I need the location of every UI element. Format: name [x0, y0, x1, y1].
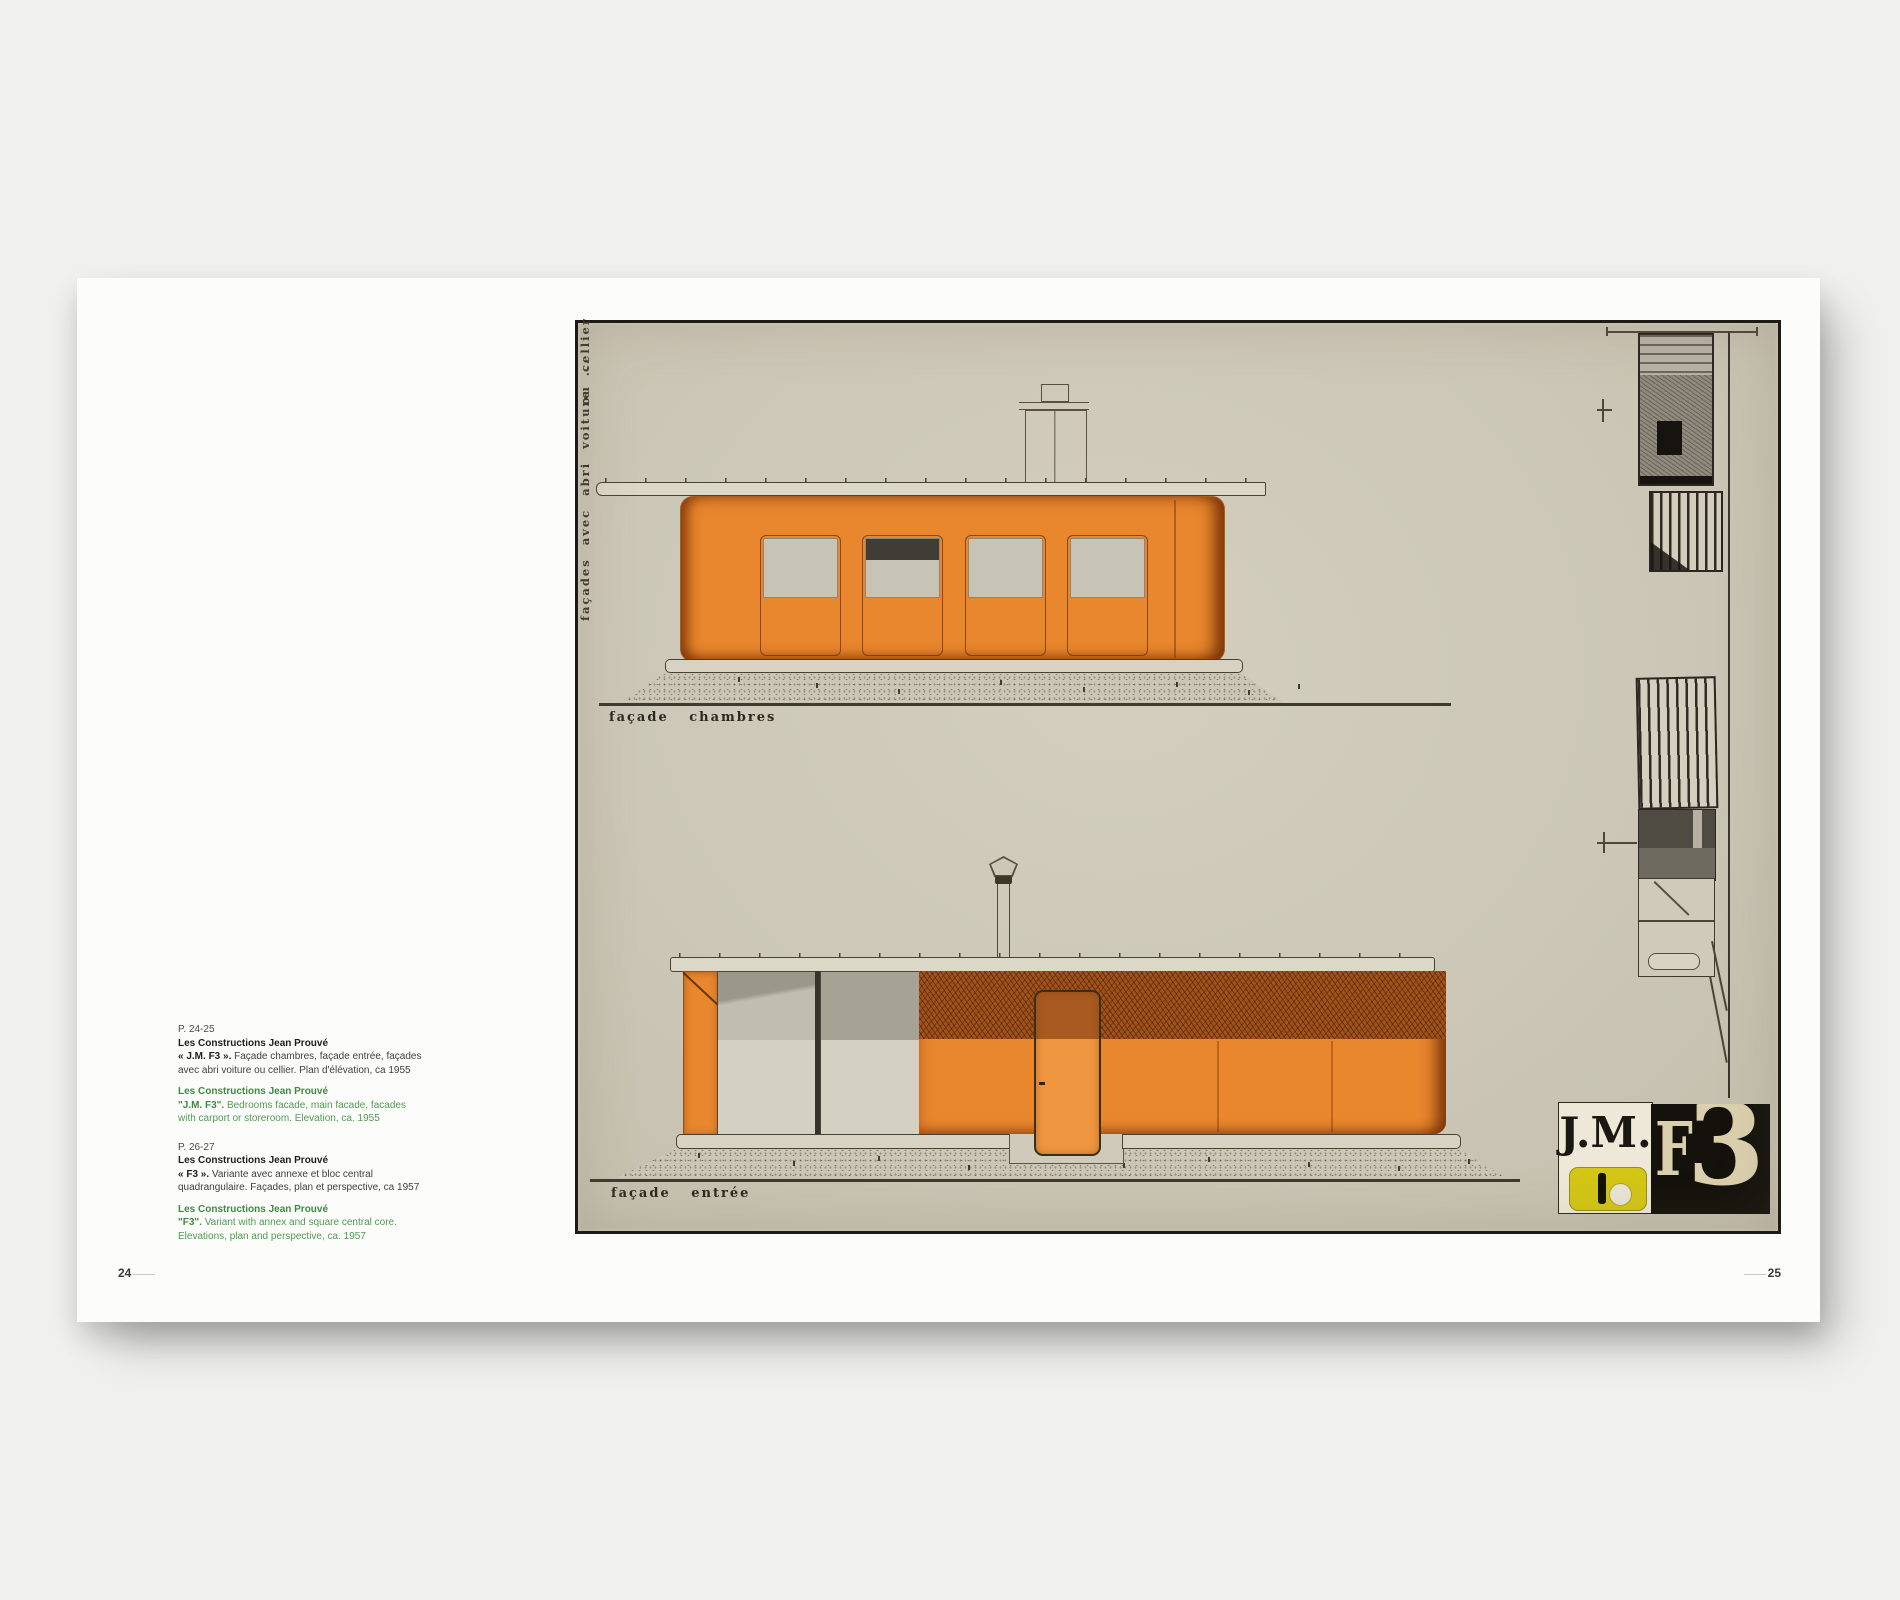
glass-lower — [718, 1040, 816, 1135]
caption-fr: Les Constructions Jean Prouvé « J.M. F3 … — [178, 1037, 468, 1078]
window — [763, 538, 838, 598]
bottom-elevation-facade — [919, 971, 1446, 1134]
panel-seam — [1217, 1041, 1219, 1132]
top-elevation-facade — [680, 496, 1225, 662]
page-number-right: 25 — [1725, 1266, 1781, 1280]
logo-f3-panel: F 3 — [1651, 1104, 1770, 1214]
logo-jm-text: J.M. — [1559, 1112, 1652, 1154]
logo-bar-glyph — [1598, 1173, 1606, 1204]
strip-panel-hatched — [1638, 333, 1714, 486]
leader-line — [1710, 976, 1728, 1063]
bottom-chimney-finial — [989, 856, 1018, 877]
top-chimney — [1025, 410, 1087, 484]
bottom-plinth-left — [676, 1134, 1011, 1149]
bottom-chimney-collar — [995, 876, 1012, 884]
window — [1070, 538, 1145, 598]
page-number-rule — [1744, 1274, 1766, 1275]
caption-en-line1: "F3". Variant with annex and square cent… — [178, 1216, 468, 1230]
logo-yellow-box — [1569, 1167, 1647, 1211]
top-roof-slab — [596, 482, 1266, 496]
page-number-left: 24 — [118, 1266, 157, 1280]
caption-column: P. 24-25 Les Constructions Jean Prouvé «… — [178, 1023, 468, 1243]
caption-fr-line1: « J.M. F3 ». Façade chambres, façade ent… — [178, 1050, 468, 1064]
caption-block-1: P. 24-25 Les Constructions Jean Prouvé «… — [178, 1023, 468, 1126]
entrance-door — [1034, 990, 1101, 1156]
grass-tufts — [738, 677, 740, 682]
glass-bay — [820, 971, 921, 1136]
panel-seam — [1174, 500, 1176, 658]
window-dark-pane — [866, 539, 939, 560]
burnt-upper-band — [919, 971, 1446, 1039]
caption-en: Les Constructions Jean Prouvé "F3". Vari… — [178, 1203, 468, 1244]
drawing-plate: façade chambres — [575, 320, 1781, 1234]
caption-fr: Les Constructions Jean Prouvé « F3 ». Va… — [178, 1154, 468, 1195]
facade-panel — [760, 535, 841, 656]
top-chimney-cap — [1041, 384, 1069, 402]
strip-panel-light — [1638, 878, 1715, 977]
glass-upper — [718, 972, 816, 1041]
logo-three-glyph: 3 — [1687, 1104, 1765, 1202]
dimension-tick — [1597, 399, 1613, 423]
strip-panel-dark — [1638, 809, 1716, 881]
door-handle — [1039, 1082, 1045, 1085]
window — [865, 538, 940, 598]
grass-tufts — [698, 1153, 700, 1158]
caption-block-2: P. 26-27 Les Constructions Jean Prouvé «… — [178, 1141, 468, 1244]
caption-en-line1: "J.M. F3". Bedrooms facade, main facade,… — [178, 1099, 468, 1113]
bottom-chimney-stack — [997, 884, 1010, 958]
top-ground-line — [599, 703, 1451, 706]
shade-line — [683, 972, 718, 1005]
dimension-tick — [1597, 832, 1639, 854]
facade-panel — [1067, 535, 1148, 656]
bottom-roof-slab — [670, 957, 1435, 972]
strip-tube-detail — [1648, 953, 1700, 970]
caption-fr-title: Les Constructions Jean Prouvé — [178, 1154, 468, 1168]
caption-en-title: Les Constructions Jean Prouvé — [178, 1085, 468, 1099]
bottom-plinth-right — [1122, 1134, 1461, 1149]
strip-baseline — [1728, 332, 1730, 1098]
panel-seam — [1331, 1041, 1333, 1132]
top-elevation-label: façade chambres — [609, 710, 776, 725]
book-spread: P. 24-25 Les Constructions Jean Prouvé «… — [77, 278, 1820, 1322]
caption-fr-line1: « F3 ». Variante avec annexe et bloc cen… — [178, 1168, 468, 1182]
caption-fr-line2: quadrangulaire. Façades, plan et perspec… — [178, 1181, 468, 1195]
strip-dark-window — [1657, 421, 1682, 455]
top-ground-mound — [619, 672, 1284, 703]
page-ref: P. 24-25 — [178, 1023, 468, 1037]
glass-bay — [717, 971, 817, 1136]
strip-tick — [1756, 327, 1758, 336]
strip-tick — [1606, 327, 1608, 336]
strip-panel-louvered-tall — [1636, 676, 1719, 810]
caption-fr-line2: avec abri voiture ou cellier. Plan d'élé… — [178, 1064, 468, 1078]
side-caption-lower: façades avec abri voiture ... — [578, 405, 592, 621]
top-chimney-plate — [1019, 402, 1089, 410]
shade-line — [1654, 881, 1690, 915]
caption-en-line2: with carport or storeroom. Elevation, ca… — [178, 1112, 468, 1126]
bottom-elevation-label: façade entrée — [611, 1186, 750, 1201]
caption-en-title: Les Constructions Jean Prouvé — [178, 1203, 468, 1217]
caption-en: Les Constructions Jean Prouvé "J.M. F3".… — [178, 1085, 468, 1126]
product-photo-stage: P. 24-25 Les Constructions Jean Prouvé «… — [0, 0, 1900, 1600]
caption-en-line2: Elevations, plan and perspective, ca. 19… — [178, 1230, 468, 1244]
glass-upper — [821, 972, 920, 1041]
window-wall-stile — [683, 971, 719, 1136]
facade-panel — [862, 535, 943, 656]
strip-panel-louvered — [1649, 491, 1723, 572]
top-plinth-slab — [665, 659, 1243, 673]
caption-fr-title: Les Constructions Jean Prouvé — [178, 1037, 468, 1051]
window — [968, 538, 1043, 598]
glass-lower — [821, 1040, 920, 1135]
bottom-ground-line — [590, 1179, 1520, 1182]
logo-circle-glyph — [1610, 1184, 1631, 1205]
page-ref: P. 26-27 — [178, 1141, 468, 1155]
page-number-rule — [133, 1274, 155, 1275]
facade-panel — [965, 535, 1046, 656]
